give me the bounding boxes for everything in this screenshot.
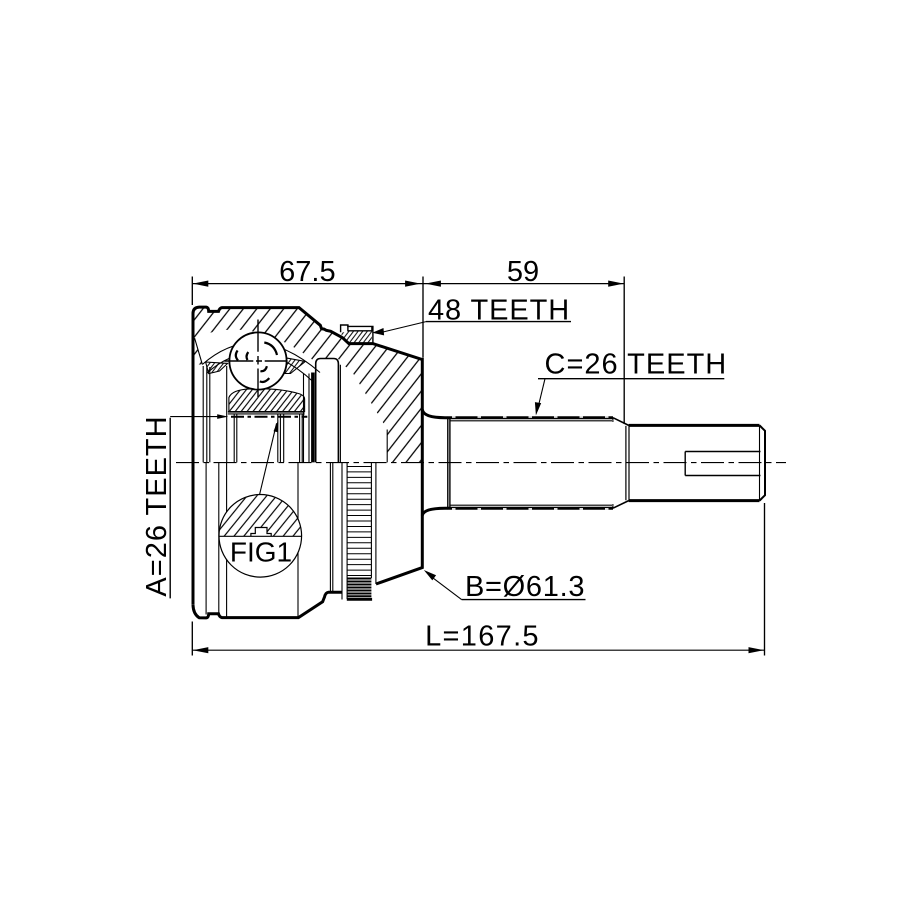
svg-text:A=26 TEETH: A=26 TEETH: [141, 415, 173, 596]
svg-text:59: 59: [507, 256, 539, 288]
svg-text:C=26 TEETH: C=26 TEETH: [545, 349, 728, 381]
svg-text:FIG1: FIG1: [230, 537, 292, 568]
svg-text:L=167.5: L=167.5: [425, 621, 540, 653]
svg-text:67.5: 67.5: [279, 256, 335, 288]
svg-text:B=Ø61.3: B=Ø61.3: [465, 571, 585, 603]
